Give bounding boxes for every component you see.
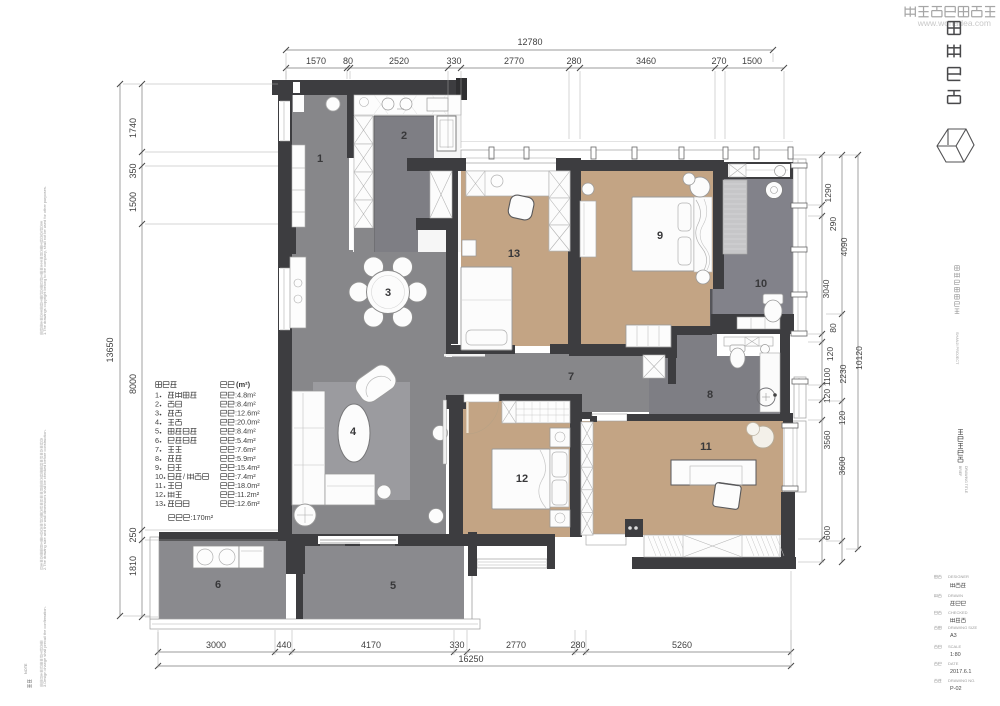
svg-text:1.The drawings copyright belon: 1.The drawings copyright belong to the c…: [42, 186, 47, 335]
svg-text:280: 280: [570, 640, 585, 650]
svg-text:80: 80: [343, 56, 353, 66]
svg-text:290: 290: [828, 217, 838, 231]
svg-text::18.0m²: :18.0m²: [235, 481, 260, 490]
svg-text:DESIGNER: DESIGNER: [948, 574, 969, 579]
svg-text:8: 8: [155, 454, 159, 463]
svg-text::170m²: :170m²: [190, 513, 213, 522]
svg-text:3560: 3560: [822, 430, 832, 449]
svg-text:10: 10: [755, 278, 767, 290]
svg-text:13: 13: [508, 248, 520, 260]
svg-text:3460: 3460: [636, 56, 656, 66]
svg-text:3.Design change shall prevail: 3.Design change shall prevail the confir…: [42, 606, 47, 687]
svg-text:1: 1: [155, 391, 159, 400]
svg-text:1570: 1570: [306, 56, 326, 66]
svg-text:/: /: [183, 474, 185, 481]
svg-text::20.0m²: :20.0m²: [235, 418, 260, 427]
svg-text:9: 9: [657, 230, 663, 242]
svg-text:330: 330: [446, 56, 461, 66]
svg-text:(m²): (m²): [236, 380, 251, 389]
svg-text:330: 330: [449, 640, 464, 650]
svg-text:120: 120: [837, 411, 847, 425]
svg-text:8000: 8000: [128, 374, 138, 394]
svg-text:2770: 2770: [506, 640, 526, 650]
svg-text:1: 1: [317, 153, 323, 165]
svg-text:SHANJI PROJECT: SHANJI PROJECT: [955, 332, 959, 365]
svg-text:1740: 1740: [128, 118, 138, 138]
svg-text::5.9m²: :5.9m²: [235, 454, 256, 463]
svg-text:7: 7: [155, 445, 159, 454]
svg-text:3040: 3040: [821, 279, 831, 298]
svg-text:2.The drawing size and the wal: 2.The drawing size and the wall dimensio…: [42, 429, 47, 570]
svg-text:350: 350: [128, 163, 138, 178]
svg-text::12.6m²: :12.6m²: [235, 409, 260, 418]
svg-text:2: 2: [401, 130, 407, 142]
svg-text:DRAWING NO.: DRAWING NO.: [948, 678, 975, 683]
svg-text:10: 10: [155, 472, 163, 481]
svg-text:3000: 3000: [206, 640, 226, 650]
svg-text:3: 3: [385, 287, 391, 299]
svg-text:11: 11: [700, 441, 712, 453]
svg-text::7.6m²: :7.6m²: [235, 445, 256, 454]
svg-text:DRAWING TITLE: DRAWING TITLE: [964, 466, 968, 494]
svg-text:1100: 1100: [822, 368, 832, 387]
svg-text:5: 5: [155, 427, 159, 436]
svg-text:11: 11: [155, 481, 163, 490]
svg-text::11.2m²: :11.2m²: [235, 490, 260, 499]
svg-text:6: 6: [215, 579, 221, 591]
svg-text:12: 12: [516, 473, 528, 485]
svg-text:4: 4: [155, 418, 159, 427]
svg-text:CHECKED: CHECKED: [948, 610, 968, 615]
svg-text:5: 5: [390, 580, 396, 592]
svg-text:3600: 3600: [837, 456, 847, 475]
svg-text::5.4m²: :5.4m²: [235, 436, 256, 445]
svg-text:440: 440: [276, 640, 291, 650]
svg-text:1290: 1290: [823, 183, 833, 202]
svg-text:600: 600: [822, 526, 832, 540]
svg-text:12: 12: [155, 490, 163, 499]
svg-text:13: 13: [155, 499, 163, 508]
svg-text:4: 4: [350, 426, 357, 438]
svg-text:7: 7: [568, 371, 574, 383]
svg-text:DATE: DATE: [948, 661, 959, 666]
svg-text:280: 280: [566, 56, 581, 66]
svg-text::8.4m²: :8.4m²: [235, 400, 256, 409]
svg-text:8: 8: [707, 389, 713, 401]
svg-text::8.4m²: :8.4m²: [235, 427, 256, 436]
svg-text:SCALE: SCALE: [948, 644, 961, 649]
svg-text::12.6m²: :12.6m²: [235, 499, 260, 508]
svg-text:12780: 12780: [517, 37, 542, 47]
svg-text:DRAWN: DRAWN: [948, 593, 963, 598]
svg-text::4.8m²: :4.8m²: [235, 391, 256, 400]
svg-text:A3: A3: [950, 633, 957, 639]
svg-text:3: 3: [155, 409, 159, 418]
svg-text:NOTE: NOTE: [24, 663, 28, 674]
svg-text:6: 6: [155, 436, 159, 445]
svg-text:80: 80: [828, 323, 838, 333]
svg-text:P-02: P-02: [950, 686, 962, 692]
svg-text:10120: 10120: [854, 346, 864, 370]
svg-text:13650: 13650: [105, 337, 115, 362]
svg-text:4090: 4090: [839, 237, 849, 256]
svg-text:5260: 5260: [672, 640, 692, 650]
svg-text:270: 270: [711, 56, 726, 66]
svg-text:2520: 2520: [389, 56, 409, 66]
svg-text:250: 250: [128, 527, 138, 542]
svg-text:1500: 1500: [128, 192, 138, 212]
svg-text:2770: 2770: [504, 56, 524, 66]
svg-text:DRAWING SIZE: DRAWING SIZE: [948, 625, 978, 630]
svg-text:2230: 2230: [838, 364, 848, 383]
svg-text:1:80: 1:80: [950, 652, 961, 658]
svg-text:1500: 1500: [742, 56, 762, 66]
svg-text:1810: 1810: [128, 556, 138, 576]
svg-text:4170: 4170: [361, 640, 381, 650]
svg-text::15.4m²: :15.4m²: [235, 463, 260, 472]
svg-text:16250: 16250: [458, 654, 483, 664]
svg-text:2: 2: [155, 400, 159, 409]
svg-text:9: 9: [155, 463, 159, 472]
svg-text:2017.6.1: 2017.6.1: [950, 669, 971, 675]
svg-text:BRIEF: BRIEF: [958, 466, 962, 476]
svg-text:120: 120: [825, 347, 835, 361]
svg-text::7.4m²: :7.4m²: [235, 472, 256, 481]
